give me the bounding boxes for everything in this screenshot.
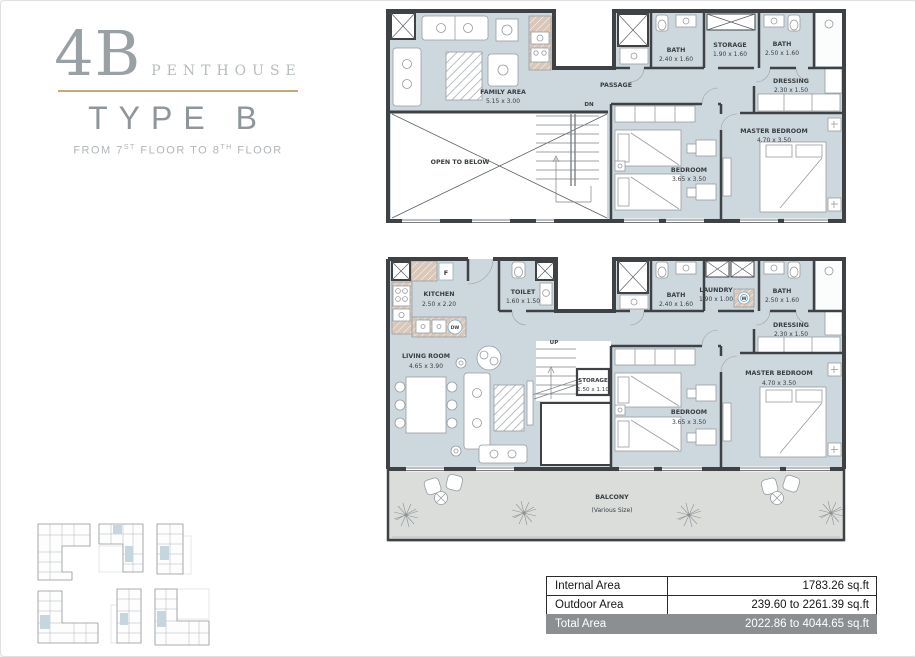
table-row-total: Total Area 2022.86 to 4044.65 sq.ft (546, 614, 877, 634)
room-label-master-upper: MASTER BEDROOM (740, 128, 807, 135)
room-dims-bedroom-upper: 3.65 x 3.50 (672, 176, 706, 183)
room-dims-bath2-upper: 2.50 x 1.60 (765, 50, 799, 57)
room-dims-living: 4.65 x 3.90 (409, 363, 443, 370)
room-dims-master-upper: 4.70 x 3.50 (757, 137, 791, 144)
area-row-value: 1783.26 sq.ft (668, 577, 876, 595)
room-dims-storage-lower: 1.50 x 1.10 (577, 387, 609, 393)
room-label-bedroom-upper: BEDROOM (671, 167, 707, 174)
stairs-up-label: UP (550, 340, 559, 346)
dishwasher-icon: DW (451, 325, 460, 331)
area-row-value: 2022.86 to 4044.65 sq.ft (667, 615, 876, 633)
room-dims-bedroom-lower: 3.65 x 3.50 (672, 419, 706, 426)
room-label-bath1-lower: BATH (667, 292, 686, 299)
program-label: PENTHOUSE (151, 63, 302, 79)
room-dims-toilet: 1.60 x 1.50 (506, 298, 540, 305)
keyplan-thumbnail-5 (109, 587, 145, 645)
room-dims-dressing-upper: 2.30 x 1.50 (774, 87, 808, 94)
room-dims-laundry: 1.90 x 1.00 (699, 296, 733, 303)
unit-number: 4B (54, 25, 141, 84)
keyplan-thumbnails (31, 517, 231, 653)
room-label-bedroom-lower: BEDROOM (671, 409, 707, 416)
table-row: Outdoor Area 239.60 to 2261.39 sq.ft (546, 595, 877, 615)
room-label-kitchen: KITCHEN (424, 291, 455, 298)
area-row-label: Total Area (547, 615, 667, 633)
keyplan-thumbnail-4 (36, 589, 100, 645)
lower-floor-plan: KITCHEN 2.50 x 2.20 TOILET 1.60 x 1.50 B… (384, 253, 850, 549)
room-dims-family-area: 5.15 x 3.00 (486, 98, 520, 105)
area-row-value: 239.60 to 2261.39 sq.ft (668, 596, 876, 614)
floorplan-sheet: 4B PENTHOUSE TYPE B FROM 7ST FLOOR TO 8T… (0, 0, 915, 657)
room-label-bath1-upper: BATH (667, 47, 686, 54)
room-label-laundry: LAUNDRY (699, 287, 733, 294)
stairs-dn-label: DN (584, 102, 594, 108)
area-summary-table: Internal Area 1783.26 sq.ft Outdoor Area… (546, 576, 877, 634)
room-dims-dressing-lower: 2.30 x 1.50 (774, 331, 808, 338)
balcony-label: BALCONY (595, 494, 629, 501)
area-row-label: Internal Area (547, 577, 668, 595)
room-dims-bath2-lower: 2.50 x 1.60 (765, 297, 799, 304)
type-label: TYPE B (58, 100, 298, 137)
room-label-storage-lower: STORAGE (578, 378, 608, 384)
area-row-label: Outdoor Area (547, 596, 668, 614)
washer-icon: W (741, 296, 746, 302)
keyplan-thumbnail-3 (153, 522, 193, 576)
balcony-note: (Various Size) (592, 507, 633, 514)
table-row: Internal Area 1783.26 sq.ft (546, 576, 877, 596)
keyplan-thumbnail-1 (36, 522, 94, 582)
fridge-icon: F (444, 269, 448, 277)
room-label-toilet: TOILET (511, 289, 536, 296)
floor-range: FROM 7ST FLOOR TO 8TH FLOOR (58, 144, 298, 157)
room-label-living: LIVING ROOM (402, 353, 450, 360)
room-label-bath2-upper: BATH (773, 41, 792, 48)
room-dims-kitchen: 2.50 x 2.20 (422, 301, 456, 308)
room-dims-master-lower: 4.70 x 3.50 (762, 380, 796, 387)
room-label-dressing-lower: DRESSING (773, 322, 809, 329)
room-label-bath2-lower: BATH (773, 288, 792, 295)
room-label-master-lower: MASTER BEDROOM (745, 370, 812, 377)
room-label-passage: PASSAGE (600, 82, 632, 89)
open-to-below-label: OPEN TO BELOW (431, 159, 490, 166)
brand-block: 4B PENTHOUSE TYPE B FROM 7ST FLOOR TO 8T… (58, 25, 298, 157)
room-label-family-area: FAMILY AREA (480, 89, 526, 96)
keyplan-thumbnail-6 (153, 587, 211, 647)
room-label-dressing-upper: DRESSING (773, 78, 809, 85)
gold-divider (58, 90, 298, 92)
keyplan-thumbnail-2 (97, 522, 145, 574)
upper-floor-plan: FAMILY AREA 5.15 x 3.00 PASSAGE DN BATH … (384, 6, 850, 228)
room-dims-bath1-upper: 2.40 x 1.60 (659, 56, 693, 63)
room-dims-bath1-lower: 2.40 x 1.60 (659, 301, 693, 308)
room-label-storage-upper: STORAGE (713, 42, 746, 49)
room-dims-storage-upper: 1.90 x 1.60 (713, 51, 747, 58)
